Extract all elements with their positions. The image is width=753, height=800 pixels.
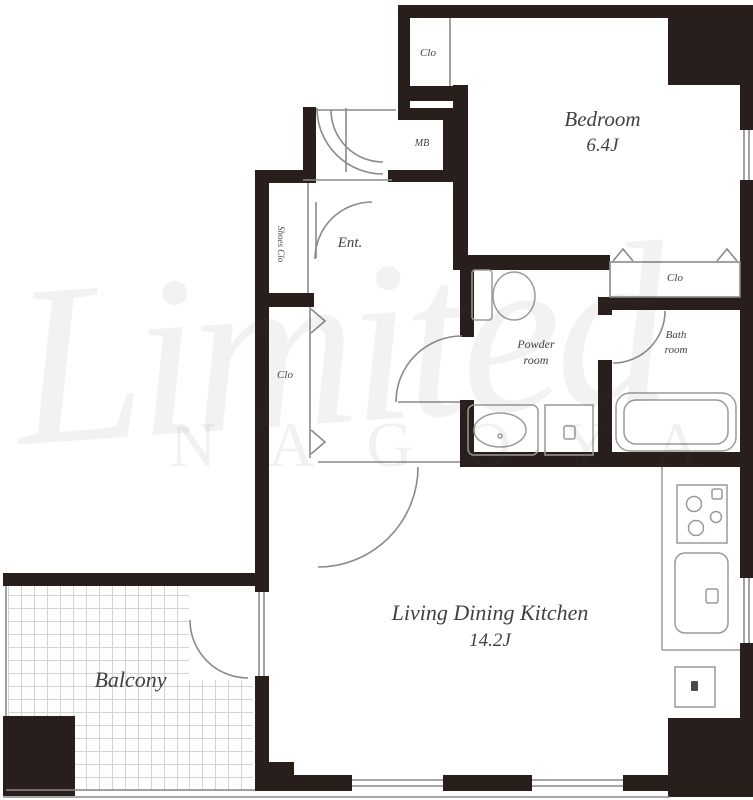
- folding-door-mark: [311, 430, 325, 454]
- refrigerator-mark: [691, 681, 698, 691]
- stove-burner: [689, 521, 704, 536]
- bedroom-size: 6.4J: [520, 133, 685, 159]
- balcony-label: Balcony: [58, 665, 203, 695]
- wall-closet-step: [398, 86, 458, 101]
- ldk-door-arc: [318, 467, 418, 567]
- powder-door-arc: [396, 336, 462, 402]
- vanity-drain: [498, 434, 502, 438]
- wall-right: [740, 18, 753, 130]
- washer-space: [545, 405, 593, 455]
- vanity-counter: [468, 405, 538, 455]
- powder-line1: Powder: [478, 336, 594, 352]
- wall-bedroom-west: [453, 85, 468, 270]
- wall-corner-block-balcony: [3, 716, 75, 796]
- entrance-label: Ent.: [322, 233, 378, 253]
- wall-wet-area-bottom: [460, 452, 753, 467]
- wall-left: [255, 676, 269, 790]
- ldk-size: 14.2J: [335, 628, 645, 654]
- ldk-name: Living Dining Kitchen: [335, 598, 645, 628]
- wall-meter-box-bottom: [388, 170, 455, 182]
- wall-closet-column: [398, 5, 410, 120]
- powder-line2: room: [478, 352, 594, 368]
- kitchen-sink: [675, 553, 728, 633]
- powder-room-label: Powder room: [478, 336, 594, 368]
- stove-burner: [711, 512, 722, 523]
- wall-powder-top: [453, 255, 610, 270]
- wall-bottom: [443, 775, 532, 791]
- wall-balcony-top: [3, 573, 256, 586]
- ldk-label: Living Dining Kitchen 14.2J: [335, 598, 645, 653]
- hanger-mark: [613, 249, 633, 261]
- wall-bottom: [623, 775, 673, 791]
- washer-tap: [564, 426, 575, 439]
- wall-powder-west: [460, 270, 474, 337]
- bath-room-label: Bath room: [630, 328, 722, 358]
- wall-bath-west: [598, 360, 612, 455]
- wall-entry-west: [303, 107, 316, 183]
- vanity-basin: [474, 413, 526, 447]
- wall-corner-block-bottom-right: [668, 718, 753, 797]
- folding-door-mark: [311, 309, 325, 333]
- shoes-closet-label: Shoes Clo: [276, 198, 285, 290]
- closet-hall-label: Clo: [262, 368, 308, 383]
- wall-meter-box-top: [398, 108, 448, 120]
- wall-closet-divider: [255, 293, 314, 307]
- wall-ldk-step: [269, 762, 294, 790]
- hanger-mark: [717, 249, 737, 261]
- entry-door-arc: [331, 110, 383, 162]
- bath-line2: room: [630, 343, 722, 358]
- floor-plan: Bedroom 6.4J Living Dining Kitchen 14.2J…: [0, 0, 753, 800]
- stove-burner: [687, 497, 702, 512]
- meter-box-label: MB: [402, 137, 442, 151]
- bath-line1: Bath: [630, 328, 722, 343]
- entry-door-arc: [317, 108, 383, 174]
- closet-top-label: Clo: [406, 46, 450, 61]
- wall-right: [740, 643, 753, 723]
- stove-grill: [712, 489, 722, 499]
- bedroom-name: Bedroom: [520, 105, 685, 133]
- wall-bath-top: [600, 297, 753, 310]
- bathtub-inner: [624, 400, 728, 444]
- stove: [677, 485, 727, 543]
- bathtub: [616, 393, 736, 451]
- toilet-tank: [472, 270, 492, 320]
- wall-right: [740, 180, 753, 578]
- kitchen-faucet: [706, 589, 718, 603]
- closet-bath-label: Clo: [640, 271, 710, 286]
- balcony-tiles: [189, 680, 253, 791]
- toilet-bowl: [493, 272, 535, 320]
- refrigerator-space: [675, 667, 715, 707]
- bedroom-label: Bedroom 6.4J: [520, 105, 685, 159]
